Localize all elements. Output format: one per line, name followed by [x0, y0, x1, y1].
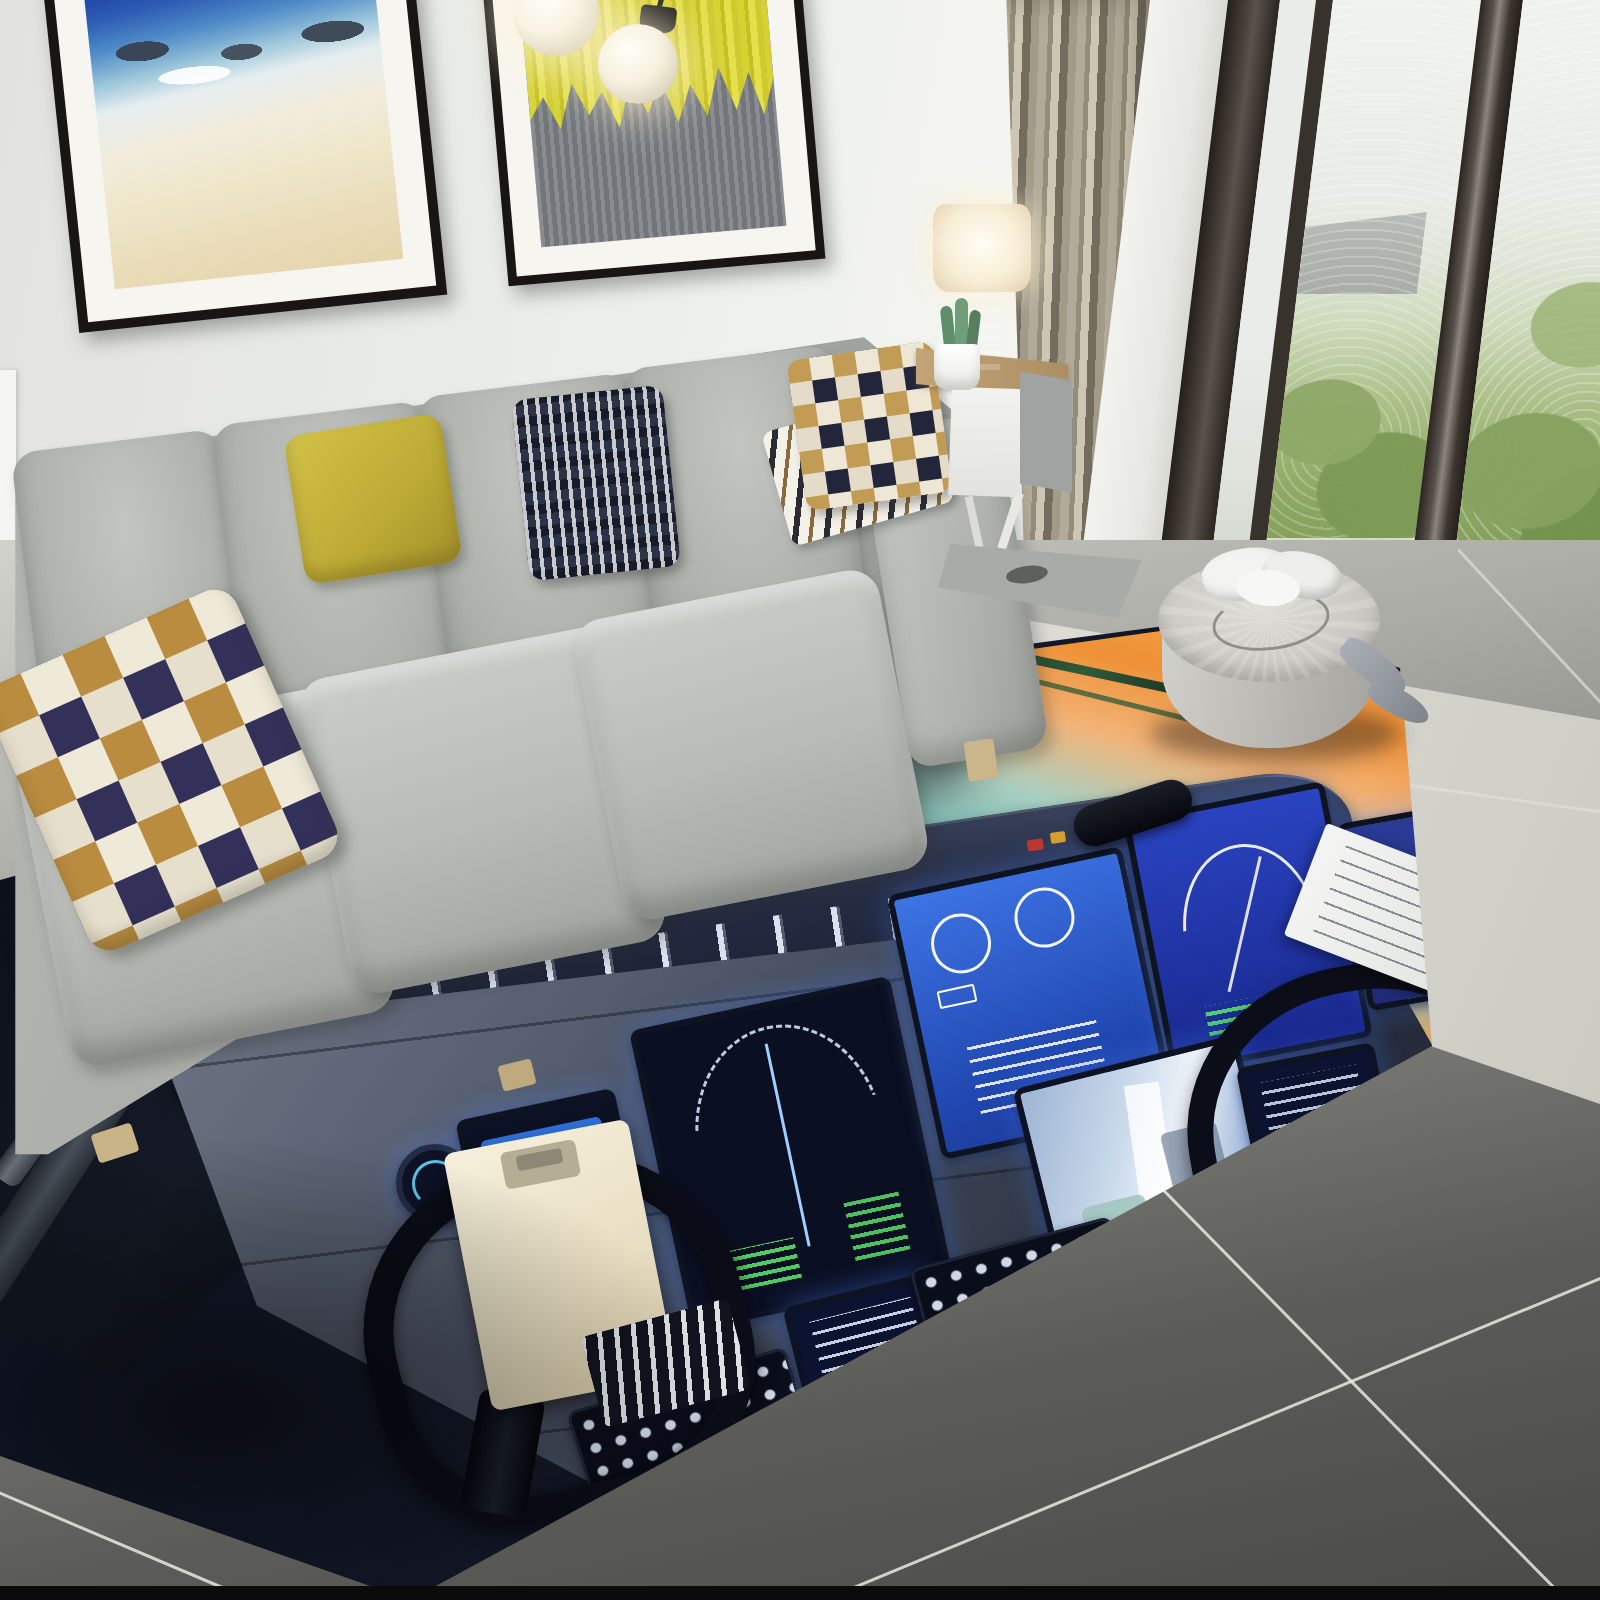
table-lamp-shade — [933, 204, 1031, 292]
living-room-photo — [0, 0, 1600, 1600]
painting-beach — [33, 0, 447, 333]
rug-eicas-white-box — [936, 984, 977, 1010]
sofa-leg-right — [963, 738, 998, 782]
pendant-globe-right — [598, 24, 678, 104]
photo-bottom-border — [0, 1586, 1600, 1600]
rug-eicas-dial-left — [926, 908, 997, 979]
cactus-pot — [934, 344, 980, 390]
pillow-navy-dash — [511, 385, 681, 582]
rug-nd-data-green2 — [843, 1191, 910, 1260]
side-table-side — [1020, 371, 1072, 492]
rug-eicas-dial-right — [1009, 882, 1080, 953]
painting-beach-art — [77, 0, 404, 289]
sofa-seat-cushion — [570, 565, 933, 924]
rug-glareshield-amber-light2 — [1050, 831, 1066, 844]
pillow-mustard — [283, 413, 463, 586]
rug-glareshield-red-light2 — [1026, 838, 1043, 851]
side-table-front — [948, 387, 1024, 497]
